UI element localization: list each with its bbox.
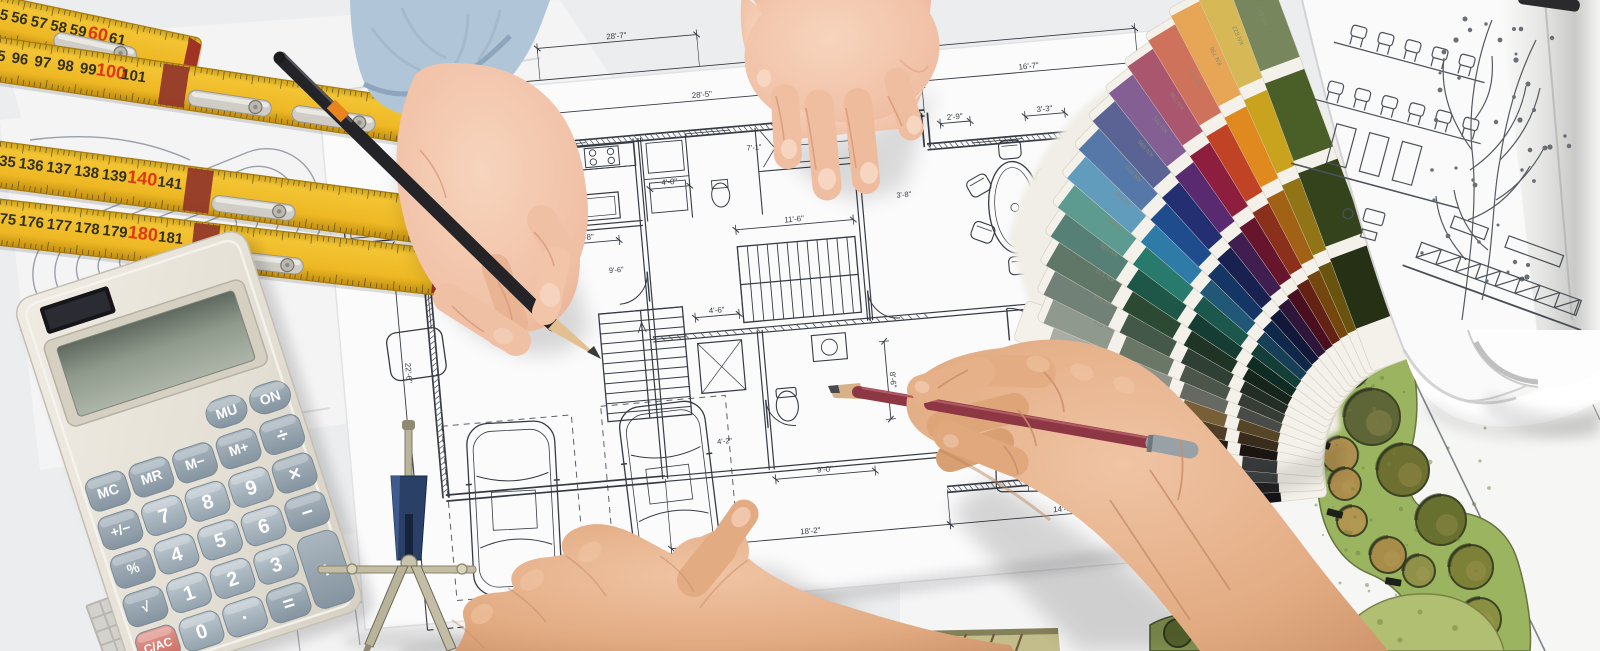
svg-text:16'-7": 16'-7" (1018, 61, 1039, 72)
svg-text:180: 180 (127, 222, 159, 245)
svg-text:28'-5": 28'-5" (691, 89, 712, 100)
svg-text:4'-0": 4'-0" (661, 177, 678, 187)
svg-text:9'-0": 9'-0" (817, 464, 834, 474)
svg-text:139: 139 (101, 166, 128, 186)
svg-text:175: 175 (0, 209, 17, 229)
svg-text:135: 135 (0, 151, 17, 171)
svg-text:136: 136 (18, 155, 45, 175)
svg-text:176: 176 (18, 212, 45, 232)
svg-text:8'-6": 8'-6" (888, 371, 898, 388)
svg-text:141: 141 (156, 173, 183, 193)
svg-text:97: 97 (33, 53, 52, 72)
svg-text:2'-9": 2'-9" (946, 112, 963, 122)
svg-text:181: 181 (157, 228, 184, 248)
svg-text:138: 138 (73, 162, 100, 182)
svg-text:177: 177 (46, 216, 73, 236)
svg-text:7'-1": 7'-1" (746, 142, 762, 152)
svg-text:4'-2": 4'-2" (717, 436, 733, 446)
svg-text:11'-6": 11'-6" (784, 214, 805, 225)
svg-text:22'-6": 22'-6" (403, 362, 414, 383)
svg-text:179: 179 (102, 222, 129, 242)
svg-text:4'-6": 4'-6" (708, 305, 725, 315)
svg-text:57: 57 (29, 13, 49, 33)
svg-text:98: 98 (56, 56, 75, 75)
svg-text:3'-8": 3'-8" (896, 189, 912, 199)
svg-text:18'-2": 18'-2" (800, 526, 821, 537)
svg-text:96: 96 (10, 50, 29, 69)
svg-text:137: 137 (45, 159, 72, 179)
svg-text:56: 56 (10, 9, 30, 29)
svg-text:9'-6": 9'-6" (608, 265, 624, 275)
svg-text:178: 178 (74, 219, 101, 239)
svg-text:140: 140 (126, 166, 158, 190)
svg-text:3'-3": 3'-3" (1036, 104, 1053, 114)
svg-text:28'-7": 28'-7" (606, 31, 627, 42)
